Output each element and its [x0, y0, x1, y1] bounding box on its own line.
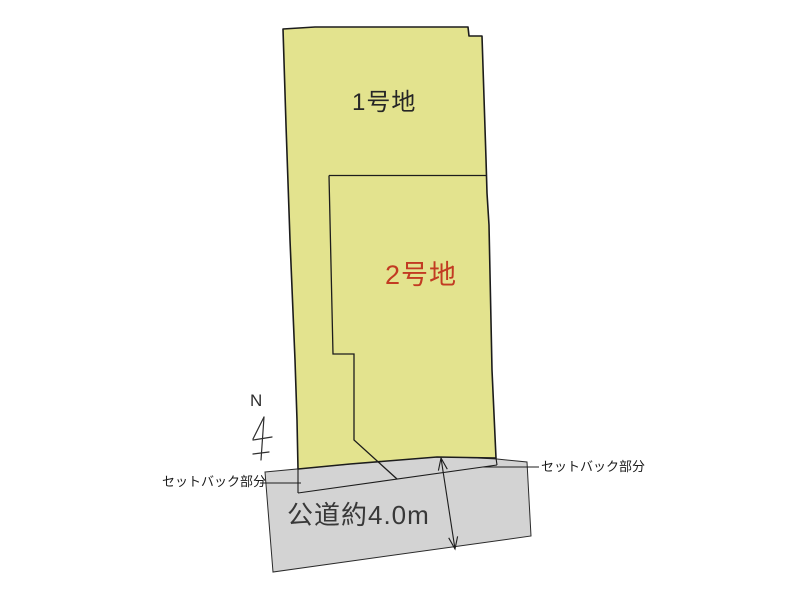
land-plot-diagram: 1号地 2号地 公道約4.0m セットバック部分 セットバック部分 N	[0, 0, 800, 600]
setback-left-label: セットバック部分	[162, 475, 266, 488]
plot1-label: 1号地	[352, 91, 416, 115]
plot2-label: 2号地	[385, 262, 457, 289]
north-arrow-icon	[253, 417, 272, 460]
setback-right-label: セットバック部分	[541, 460, 645, 473]
north-label: N	[250, 392, 262, 409]
road-label: 公道約4.0m	[287, 502, 430, 528]
